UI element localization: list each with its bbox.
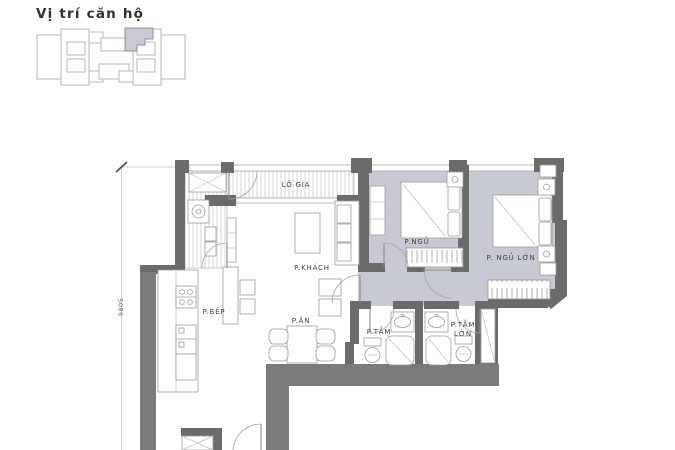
bed-symbol xyxy=(401,182,462,238)
room-label-p-an: P.ĂN xyxy=(292,317,311,325)
stove-icon xyxy=(176,286,196,308)
toilet-icon xyxy=(364,338,381,363)
nightstand-symbol xyxy=(447,172,463,187)
dining-set-symbol xyxy=(269,326,335,363)
sink-icon xyxy=(176,325,196,354)
wardrobe-symbol xyxy=(406,248,463,267)
room-label-p-bep: P.BẾP xyxy=(203,308,226,316)
shower-icon xyxy=(426,336,451,365)
toilet-icon xyxy=(455,336,472,362)
floorplan-page: Vị trí căn hộ xyxy=(0,0,675,450)
sink-icon xyxy=(391,312,414,332)
shaft-symbol xyxy=(182,436,213,450)
dimension-label: 9805 xyxy=(117,298,125,317)
room-label-p-tam: P.TẮM xyxy=(367,328,391,336)
room-label-p-tam-lon: P.TẮM LỚN xyxy=(451,321,475,339)
shower-icon xyxy=(386,336,414,365)
room-label-p-khach: P.KHÁCH xyxy=(294,264,330,272)
kitchen-furniture xyxy=(158,267,255,392)
sofa-symbol xyxy=(335,201,359,265)
room-label-p-ngu-lon: P. NGỦ LỚN xyxy=(486,254,535,262)
fridge-symbol xyxy=(176,354,196,380)
wardrobe-symbol xyxy=(488,280,550,299)
nightstand-symbol xyxy=(538,246,555,262)
room-label-lo-gia: LÔ GIA xyxy=(282,181,310,189)
desk-symbol xyxy=(370,186,385,235)
nightstand-symbol xyxy=(538,179,555,195)
tv-console-symbol xyxy=(227,218,236,262)
master-bed-symbol xyxy=(493,195,552,247)
washer-icon xyxy=(188,200,209,223)
sink-icon xyxy=(425,312,448,332)
coffee-table-symbol xyxy=(295,213,320,253)
room-label-p-ngu: P.NGỦ xyxy=(404,238,429,246)
floorplan-drawing xyxy=(0,0,675,450)
storage-niche xyxy=(481,309,495,363)
